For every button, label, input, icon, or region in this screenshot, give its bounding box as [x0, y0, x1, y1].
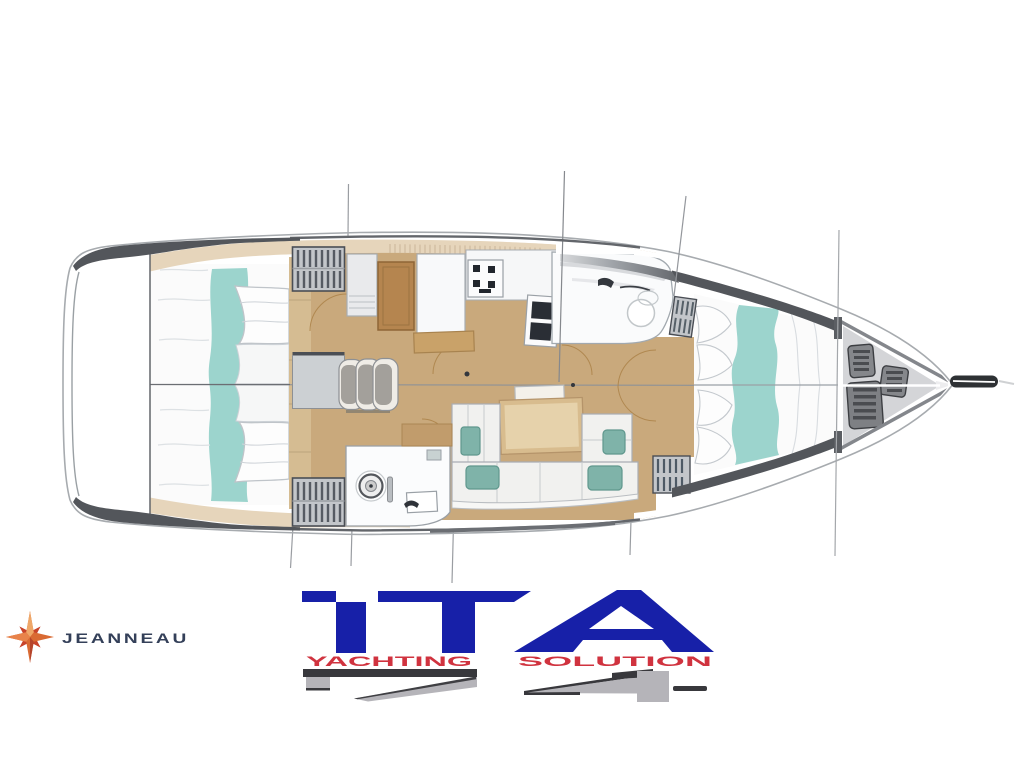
svg-text:SOLUTION: SOLUTION — [518, 654, 712, 669]
svg-text:JEANNEAU: JEANNEAU — [62, 630, 189, 646]
svg-text:YACHTING: YACHTING — [306, 654, 472, 669]
